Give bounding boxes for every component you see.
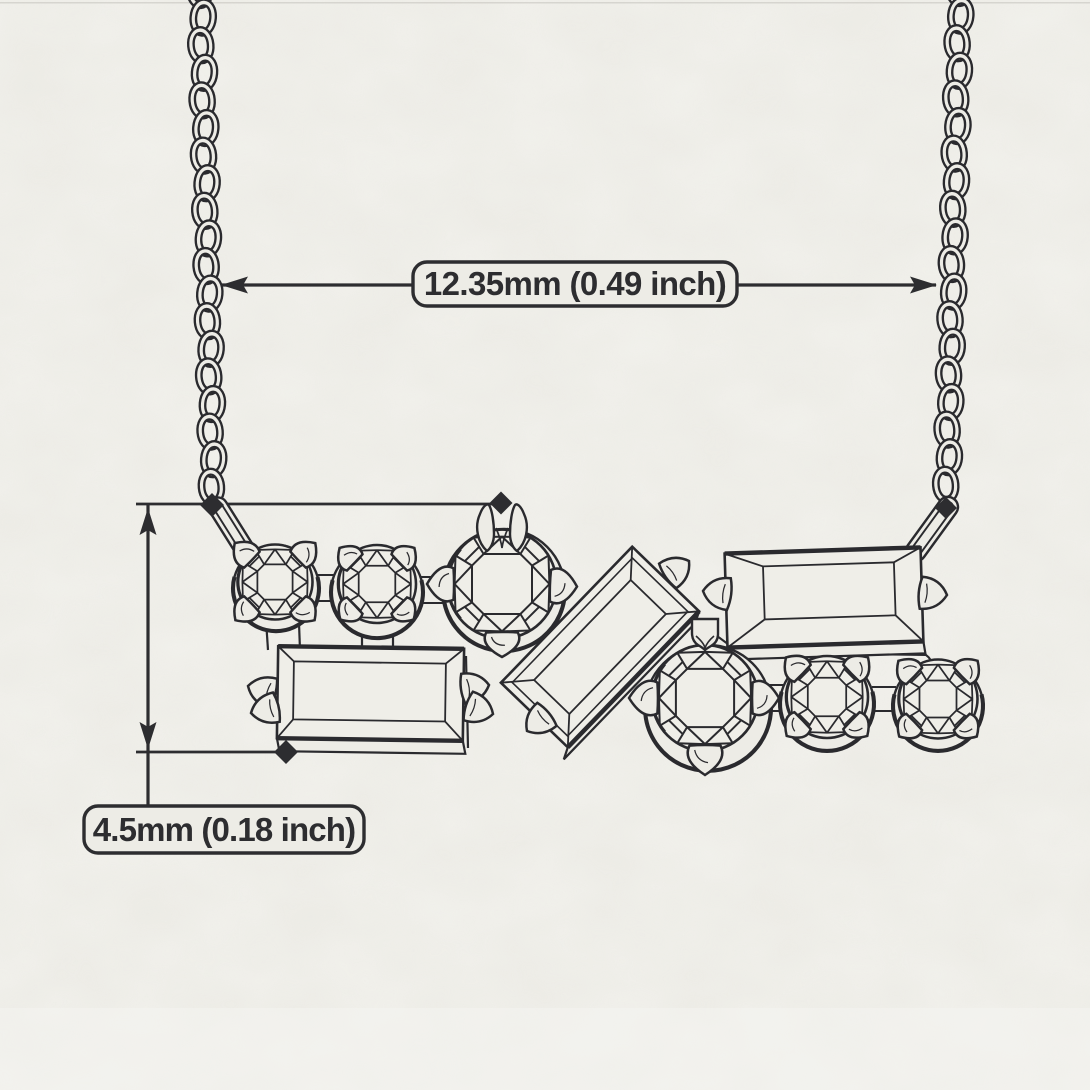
- svg-text:4.5mm (0.18 inch): 4.5mm (0.18 inch): [93, 811, 356, 848]
- svg-text:12.35mm (0.49 inch): 12.35mm (0.49 inch): [424, 265, 726, 302]
